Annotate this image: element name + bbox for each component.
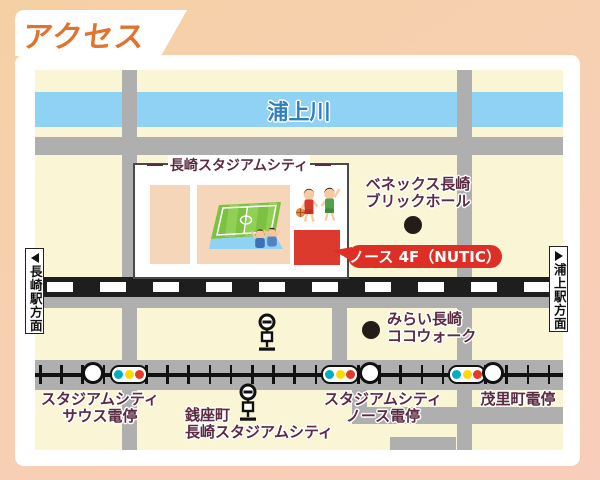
tram-stop-marker xyxy=(482,362,504,384)
left-arrow-icon xyxy=(31,253,39,263)
map-canvas: 浦上川 xyxy=(35,70,563,450)
tram-stop-marker xyxy=(359,362,381,384)
right-arrow-icon xyxy=(555,251,563,261)
brick-hall-marker xyxy=(404,216,422,234)
stop-label-south: スタジアムシティ サウス電停 xyxy=(40,391,160,424)
cocowalk-label: みらい長崎 ココウォーク xyxy=(387,311,476,344)
stop-label-north: スタジアムシティ ノース電停 xyxy=(323,391,443,424)
tram-stop-marker xyxy=(82,362,104,384)
stadium-city-box xyxy=(133,163,349,279)
tram-stop-sign-icon xyxy=(256,313,278,353)
page-title: アクセス xyxy=(20,12,148,56)
basketball-players-illustration xyxy=(292,185,342,227)
brick-hall-label: ベネックス長崎 ブリックホール xyxy=(353,176,483,209)
nutic-callout: ノース 4F（NUTIC） xyxy=(348,245,502,268)
traffic-signal-icon xyxy=(321,365,359,384)
stop-label-morimachi: 茂里町電停 xyxy=(473,391,563,408)
direction-sign-nagasaki: 長崎駅方面 xyxy=(25,248,44,334)
label-dash xyxy=(147,164,163,167)
label-dash xyxy=(315,164,331,167)
rail-dash-pattern xyxy=(35,282,563,292)
jr-rail-line xyxy=(35,277,563,297)
road-horizontal-top xyxy=(35,137,563,155)
traffic-signal-icon xyxy=(110,365,148,384)
nutic-location-block xyxy=(294,230,340,265)
access-map: アクセス 浦上川 xyxy=(0,0,600,480)
road-below-rail xyxy=(35,297,563,308)
stop-label-zenza: 銭座町 長崎スタジアムシティ xyxy=(185,407,333,440)
stadium-building-block xyxy=(150,185,190,264)
road-vertical-middle xyxy=(332,308,347,360)
road-horizontal-bottom-edge xyxy=(390,437,456,450)
soccer-stadium-illustration xyxy=(209,199,283,249)
river-label: 浦上川 xyxy=(35,96,563,126)
direction-sign-urakami: 浦上駅方面 xyxy=(549,246,568,332)
traffic-signal-icon xyxy=(448,365,486,384)
stadium-box-label: 長崎スタジアムシティ xyxy=(133,155,345,175)
cocowalk-marker xyxy=(362,321,380,339)
